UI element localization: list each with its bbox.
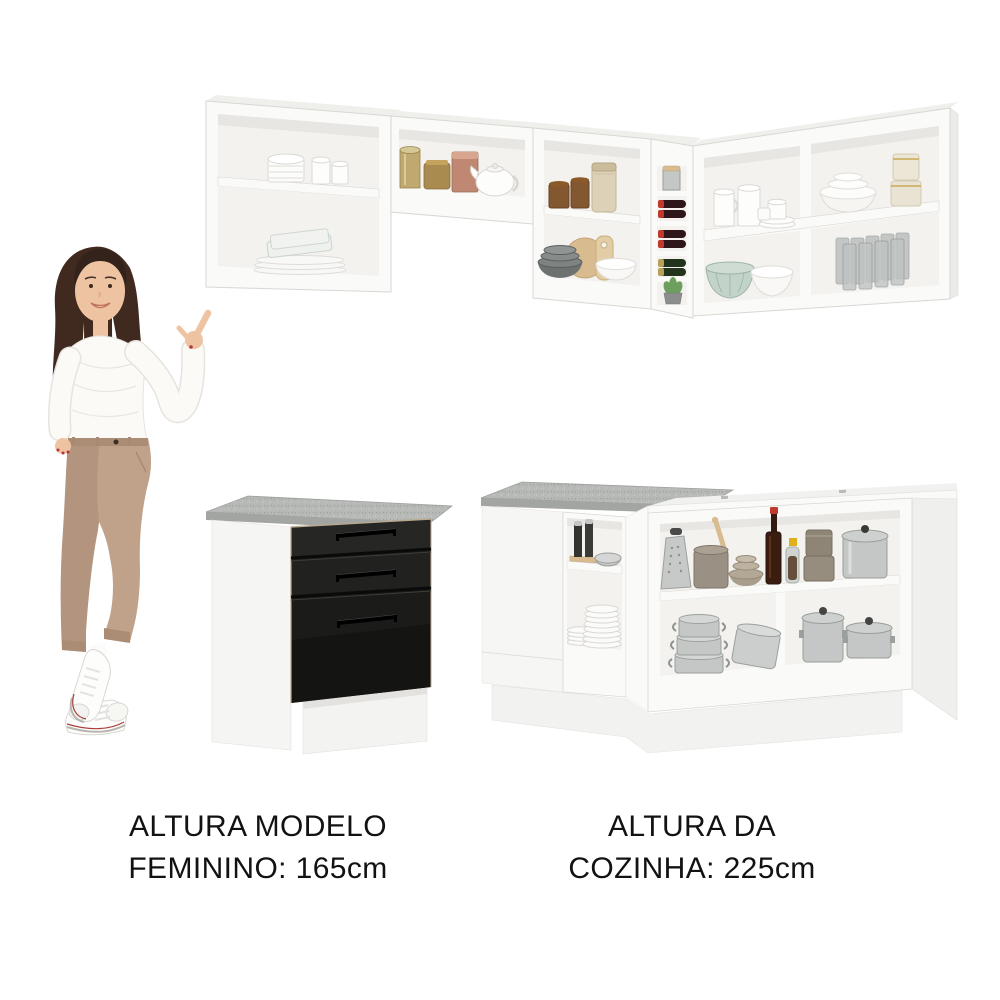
caption-kitchen-height-line2: COZINHA: 225cm [522, 848, 862, 890]
waistband [68, 438, 148, 446]
stock-pot [799, 607, 847, 662]
kitchen-product-image: ALTURA MODELO FEMININO: 165cm ALTURA DA … [0, 0, 1000, 1000]
raised-pointing-arm [136, 313, 208, 411]
upper-cabinet-bridge [391, 111, 541, 224]
cup-stack [312, 157, 348, 184]
upper-cabinet-middle [533, 123, 659, 309]
large-aluminum-pot [842, 525, 888, 578]
pants-front-leg [97, 438, 151, 642]
gray-bowl-stack [538, 246, 582, 279]
drinking-glasses [836, 233, 909, 290]
leaning-pan [731, 622, 781, 670]
bowl-stack [268, 154, 304, 182]
brass-canister [400, 147, 420, 189]
base-cabinet-drawers [206, 496, 452, 754]
steel-bowl [595, 553, 621, 566]
button [114, 440, 119, 445]
pointing-finger [196, 313, 208, 336]
cream-canisters [891, 154, 921, 206]
wine-bottles [658, 200, 686, 276]
caption-kitchen-height-line1: ALTURA DA [522, 806, 862, 848]
black-drawer-front [291, 519, 431, 703]
caption-model-height: ALTURA MODELO FEMININO: 165cm [88, 806, 428, 890]
upper-cabinet-left [206, 95, 401, 292]
mason-jar [592, 163, 616, 212]
caption-model-height-line1: ALTURA MODELO [88, 806, 428, 848]
upper-cabinet-right [693, 102, 958, 316]
caption-model-height-line2: FEMININO: 165cm [88, 848, 428, 890]
caption-kitchen-height: ALTURA DA COZINHA: 225cm [522, 806, 862, 890]
bronze-tin [424, 160, 450, 189]
steel-canister [663, 166, 680, 190]
corner-counter [481, 482, 957, 753]
taupe-canisters [804, 530, 834, 581]
female-model [53, 247, 208, 735]
pants [61, 437, 151, 652]
lower-cabinets [206, 482, 957, 754]
upper-cabinets [206, 95, 958, 318]
